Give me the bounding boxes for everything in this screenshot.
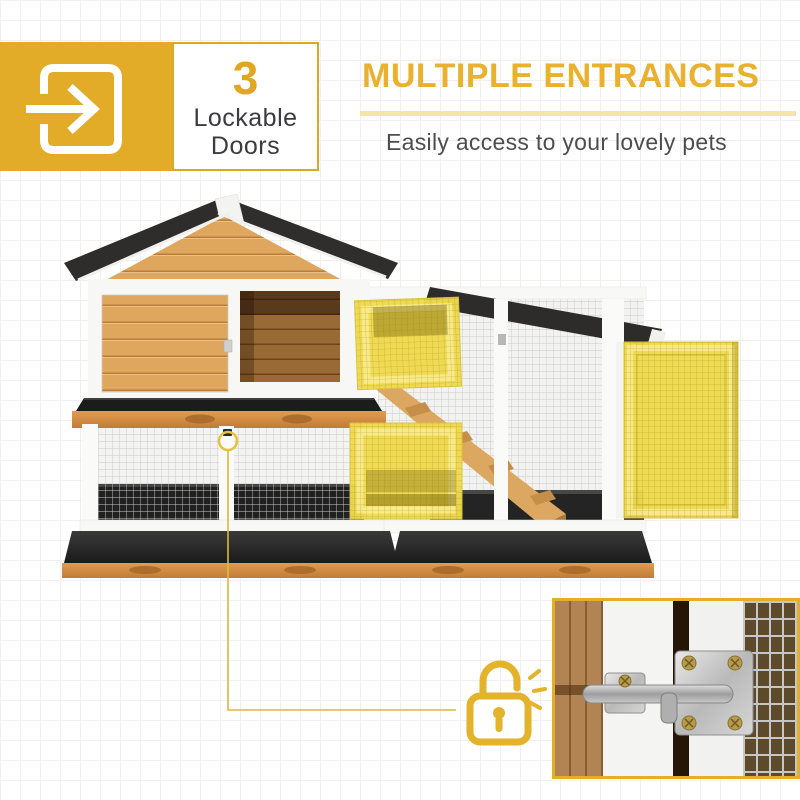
house-section <box>64 194 398 428</box>
pullout-tray-left <box>62 531 400 578</box>
lower-run-section <box>80 424 384 533</box>
wood-door <box>102 295 228 392</box>
click-spark-lines <box>530 671 545 708</box>
highlighted-door-top <box>354 297 461 390</box>
upper-pullout-tray <box>72 411 386 428</box>
unlocked-padlock-icon <box>470 664 545 742</box>
pullout-tray-right <box>390 531 654 578</box>
highlighted-door-bottom <box>350 423 462 519</box>
barrel-bolt-latch <box>575 643 755 743</box>
open-doorway <box>240 291 340 382</box>
latch-closeup-photo <box>552 598 800 779</box>
highlighted-door-right <box>616 342 738 518</box>
